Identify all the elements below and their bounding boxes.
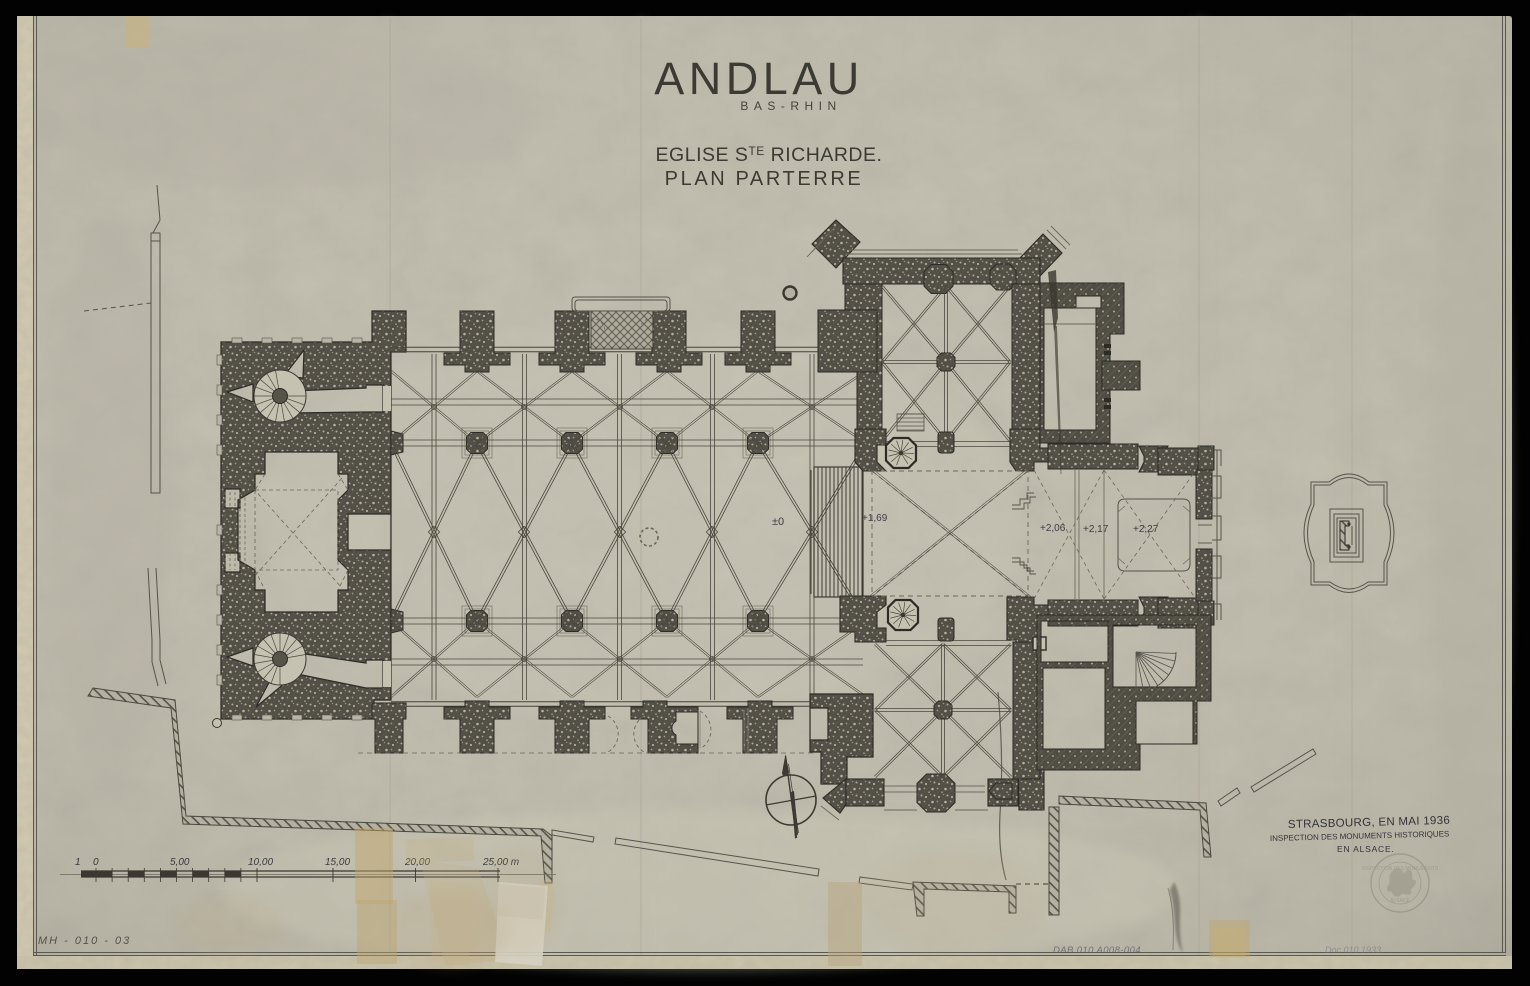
svg-text:Doc 010 1933: Doc 010 1933 [1325,945,1381,955]
svg-text:+1,69: +1,69 [862,513,888,524]
svg-text:+2,27: +2,27 [1133,524,1159,535]
svg-text:EN ALSACE.: EN ALSACE. [1337,844,1395,854]
svg-text:1: 1 [75,857,81,868]
svg-text:BAS-RHIN: BAS-RHIN [740,99,841,113]
svg-text:±0: ±0 [772,516,784,528]
svg-text:0: 0 [93,857,99,868]
svg-text:PLAN PARTERRE: PLAN PARTERRE [665,168,864,190]
svg-text:DAB 010 A008-004: DAB 010 A008-004 [1053,945,1141,956]
svg-text:MH - 010 - 03: MH - 010 - 03 [38,935,131,947]
svg-text:EGLISE STE RICHARDE.: EGLISE STE RICHARDE. [656,144,883,166]
svg-text:INSPECTION DES MONUMENTS: INSPECTION DES MONUMENTS [1362,866,1439,872]
svg-text:5,00: 5,00 [170,857,190,868]
svg-text:15,00: 15,00 [325,857,350,868]
svg-text:+2,17: +2,17 [1083,524,1109,535]
svg-text:ALSACE: ALSACE [1390,898,1410,904]
svg-text:ANDLAU: ANDLAU [654,53,864,104]
svg-text:+2,06: +2,06 [1040,523,1066,534]
svg-text:10,00: 10,00 [248,857,273,868]
